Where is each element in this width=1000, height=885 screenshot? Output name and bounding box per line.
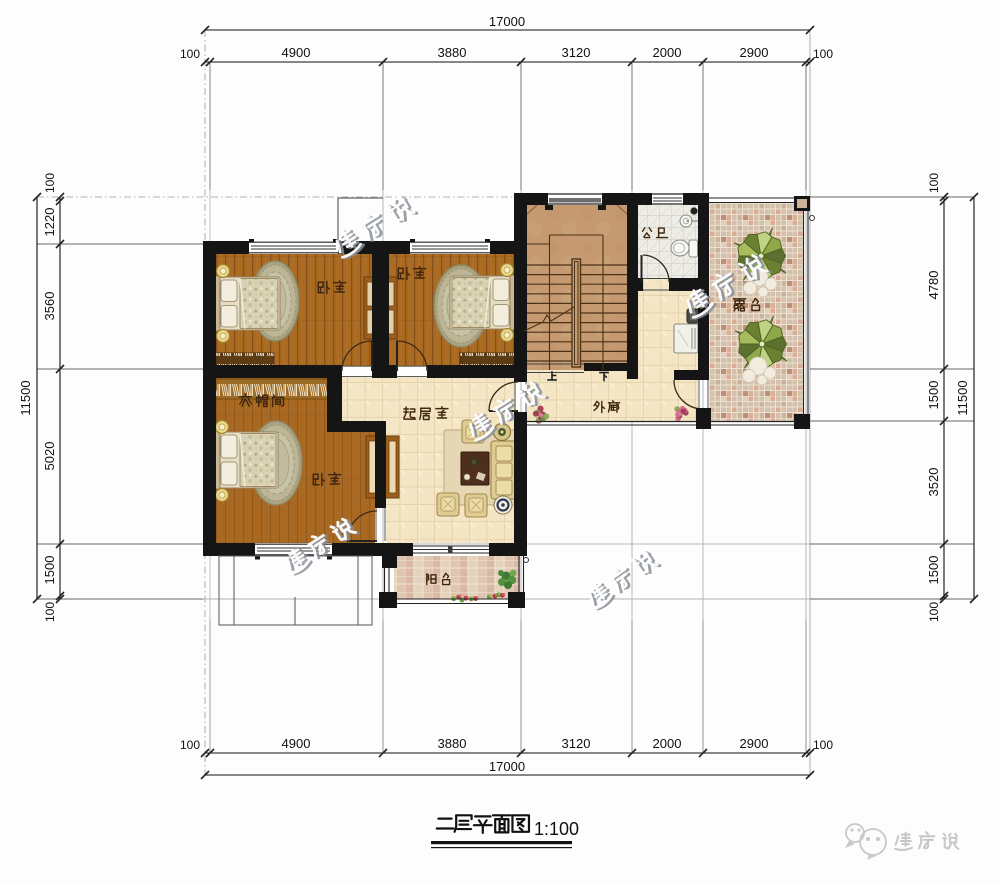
svg-text:100: 100 (927, 602, 941, 622)
svg-text:17000: 17000 (489, 14, 525, 29)
svg-text:1500: 1500 (926, 381, 941, 410)
svg-text:1500: 1500 (926, 556, 941, 585)
svg-text:2900: 2900 (740, 736, 769, 751)
svg-text:100: 100 (180, 47, 200, 61)
svg-text:11500: 11500 (955, 380, 970, 415)
svg-text:100: 100 (813, 738, 833, 752)
svg-text:17000: 17000 (489, 759, 525, 774)
svg-text:2900: 2900 (740, 45, 769, 60)
svg-text:3560: 3560 (42, 292, 57, 321)
svg-text:1:100: 1:100 (534, 819, 579, 839)
svg-text:100: 100 (927, 173, 941, 193)
svg-text:100: 100 (813, 47, 833, 61)
svg-text:3120: 3120 (562, 736, 591, 751)
svg-text:5020: 5020 (42, 442, 57, 471)
svg-text:1500: 1500 (42, 556, 57, 585)
svg-text:2000: 2000 (653, 736, 682, 751)
svg-text:4780: 4780 (926, 271, 941, 300)
svg-text:2000: 2000 (653, 45, 682, 60)
svg-text:3120: 3120 (562, 45, 591, 60)
svg-text:100: 100 (180, 738, 200, 752)
svg-text:1220: 1220 (42, 208, 57, 237)
svg-text:100: 100 (43, 173, 57, 193)
svg-text:100: 100 (43, 602, 57, 622)
svg-text:3520: 3520 (926, 468, 941, 497)
svg-text:4900: 4900 (282, 736, 311, 751)
svg-text:3880: 3880 (438, 45, 467, 60)
svg-text:3880: 3880 (438, 736, 467, 751)
svg-text:11500: 11500 (18, 380, 33, 415)
svg-text:4900: 4900 (282, 45, 311, 60)
